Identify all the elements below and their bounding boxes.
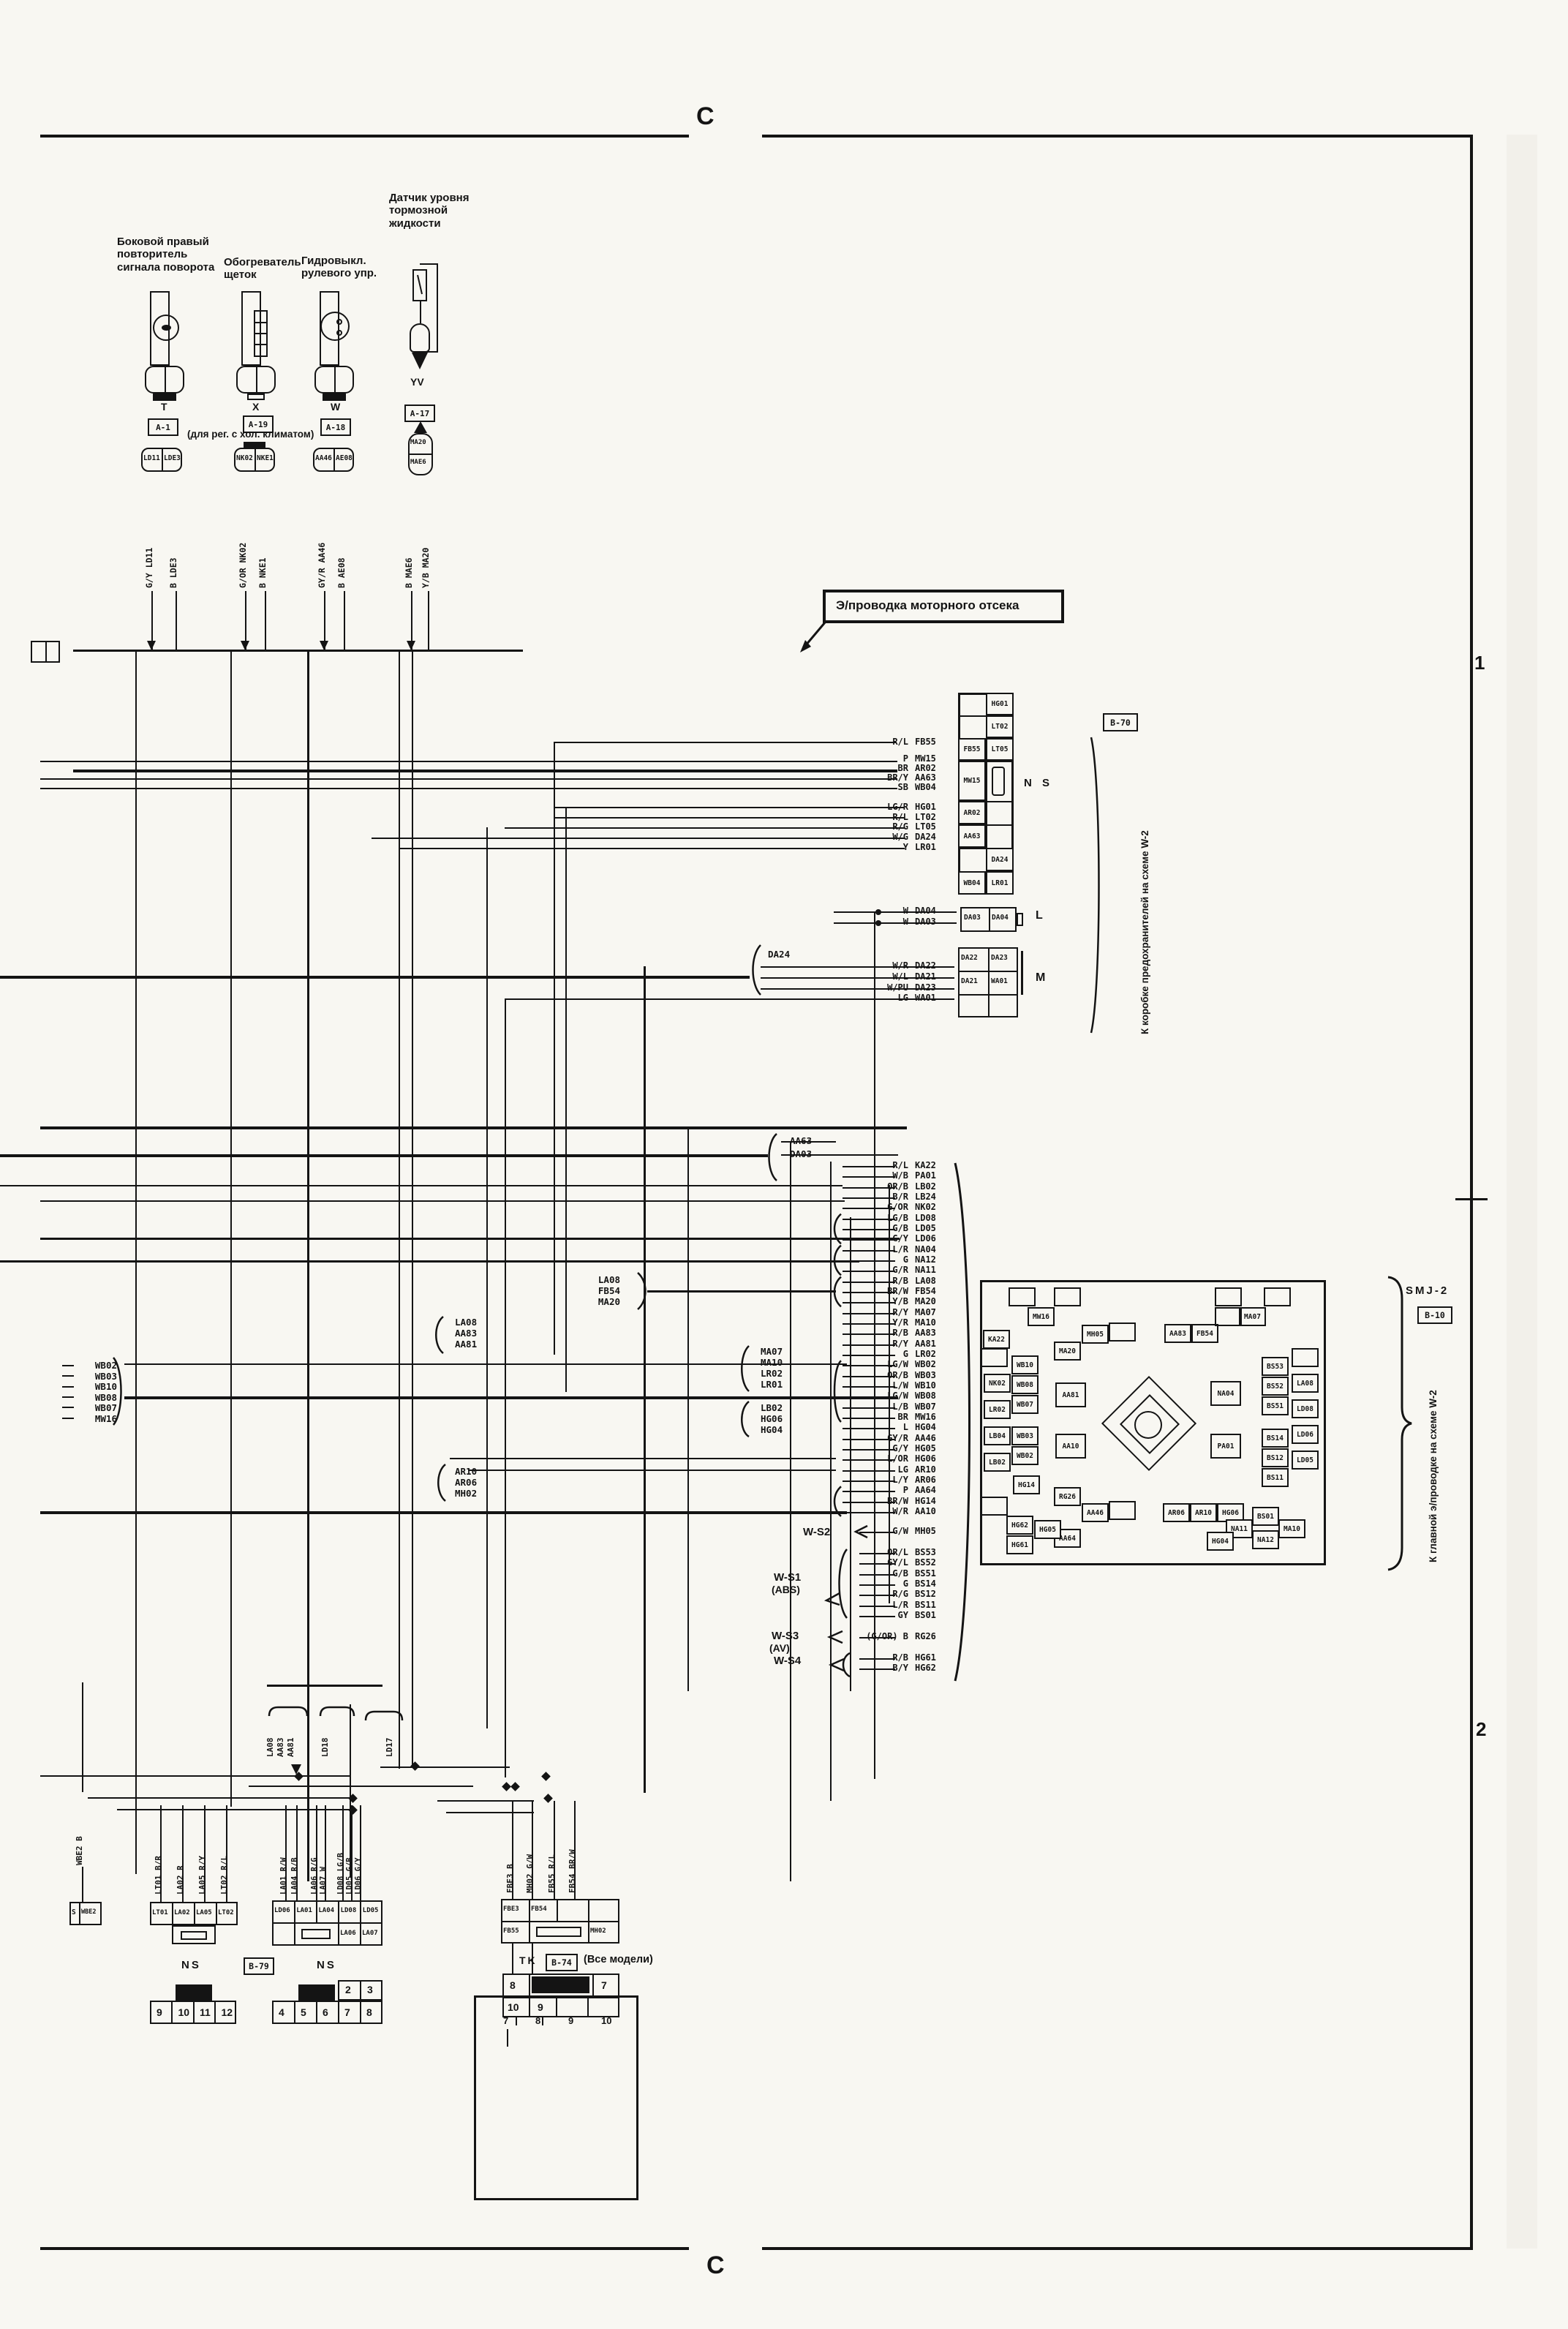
wire-pin: HG06 — [915, 1453, 954, 1464]
smj-empty-cell — [1215, 1307, 1242, 1326]
wire-pin: MA07 — [915, 1307, 954, 1317]
wire-line — [762, 135, 1471, 138]
wire-pin: PA01 — [915, 1170, 954, 1181]
wire-pin: BS14 — [915, 1579, 954, 1589]
bracket-wire-label: DA03 — [790, 1149, 812, 1159]
wire-line — [62, 1407, 74, 1408]
wire-line — [843, 1197, 895, 1199]
wire-pin: BS01 — [915, 1610, 954, 1620]
pin-id: WBE2 — [81, 1909, 96, 1916]
pin-number: 9 — [157, 2006, 162, 2018]
pin-id: LA07 — [362, 1930, 378, 1937]
wire-line — [843, 1502, 895, 1503]
pin-id: FBE3 — [503, 1905, 519, 1913]
wire-line — [40, 135, 689, 138]
wire-label: B/RLB24 — [826, 1192, 954, 1202]
pin-number: 10 — [178, 2006, 190, 2018]
wire-label: L/RNA04 — [826, 1244, 954, 1254]
wire-color: R/L — [826, 812, 915, 822]
slot — [992, 767, 1005, 796]
wire-color: L/OR — [826, 1453, 915, 1464]
wire-color: LG — [826, 993, 915, 1003]
m-cell: DA21 — [961, 978, 978, 986]
wire-label: R/LFB55 — [826, 737, 954, 747]
wire-line — [843, 1187, 895, 1189]
wire-pin: DA04 — [915, 906, 954, 916]
wire-line — [843, 1396, 895, 1398]
wire-line — [647, 1290, 836, 1293]
wire-color: W/PU — [826, 982, 915, 993]
junction-dot — [502, 1782, 511, 1791]
wire-line — [0, 976, 750, 979]
wire-label: R/YMA07 — [826, 1307, 954, 1317]
wire-color: LG/W — [826, 1391, 915, 1401]
wire-label: W/LDA21 — [826, 971, 954, 982]
rotated-wire-label: B LDE3 — [169, 477, 178, 588]
pin-id: LA05 — [196, 1909, 212, 1916]
group-label: AA83 — [276, 1712, 286, 1757]
bracket-wire-label: MA20 — [598, 1297, 620, 1307]
junction-dot — [541, 1772, 551, 1781]
smj-cell: WB10 — [1011, 1355, 1039, 1374]
smj-cell: NA12 — [1252, 1530, 1279, 1549]
smj-cell: BS53 — [1262, 1357, 1289, 1376]
wire-color: SB — [826, 782, 915, 792]
wire-line — [859, 1616, 895, 1617]
wire-color: W/G — [826, 832, 915, 842]
wire-pin: LR01 — [915, 842, 954, 852]
rotated-wire-label: GY/R AA46 — [317, 477, 327, 588]
wire-pin: DA23 — [915, 982, 954, 993]
connector-ref: A-17 — [404, 405, 435, 422]
smj-cell: FB54 — [1191, 1324, 1218, 1343]
wire-line — [245, 591, 246, 651]
pin-number: 5 — [301, 2006, 306, 2018]
smj-empty-cell — [1292, 1348, 1319, 1367]
wire-label: G/RNA11 — [826, 1265, 954, 1275]
wire-label: LHG04 — [826, 1422, 954, 1432]
wire-color: BR — [826, 763, 915, 773]
wire-line — [843, 1512, 895, 1513]
wire-line — [194, 1902, 195, 1925]
wire-pin: BS12 — [915, 1589, 954, 1599]
wire-color: G — [826, 1349, 915, 1359]
smj-cell: LB04 — [984, 1426, 1011, 1445]
smj-cell: AR06 — [1163, 1503, 1190, 1522]
smj-cell: KA22 — [983, 1330, 1010, 1349]
ws-label: W-S4 — [774, 1655, 801, 1667]
wire-color: R/Y — [826, 1307, 915, 1317]
smj-empty-cell — [1109, 1322, 1136, 1342]
wire-color: R/G — [826, 1589, 915, 1599]
wire-line — [843, 1292, 895, 1293]
wire-pin: HG04 — [915, 1422, 954, 1432]
wire-line — [338, 1900, 339, 1922]
bracket-path — [955, 1163, 970, 1681]
wire-line — [40, 788, 897, 789]
wire-pin: LT05 — [915, 821, 954, 832]
wire-line — [958, 994, 1018, 996]
wire-color: B/Y — [826, 1663, 915, 1673]
wire-line — [333, 448, 335, 472]
bracket-wire-label: WB02 — [95, 1361, 117, 1371]
component-label: Датчик уровня тормозной жидкости — [389, 192, 469, 230]
wire-label: GY/LBS52 — [826, 1557, 954, 1568]
ns-cell: LT02 — [986, 715, 1014, 738]
wire-line — [687, 1126, 689, 1691]
wire-line — [249, 1786, 473, 1787]
wire-line — [45, 641, 47, 663]
wire-color: R/G — [826, 821, 915, 832]
pin-id: MAE6 — [410, 459, 426, 466]
wire-line — [501, 1921, 619, 1922]
bracket-wire-label: MA07 — [761, 1347, 783, 1357]
wire-label: R/LKA22 — [826, 1160, 954, 1170]
wire-label: R/BLA08 — [826, 1276, 954, 1286]
wire-color: GY/L — [826, 1557, 915, 1568]
wire-label: G/YHG05 — [826, 1443, 954, 1453]
wire-color: BR/Y — [826, 772, 915, 783]
wire-color: R/L — [826, 1160, 915, 1170]
wire-pin: HG14 — [915, 1496, 954, 1506]
wire-pin: HG62 — [915, 1663, 954, 1673]
wire-label: R/LLT02 — [826, 812, 954, 822]
wire-pin: WB03 — [915, 1370, 954, 1380]
wire-pin: AR06 — [915, 1475, 954, 1485]
pin-id: LD08 — [341, 1907, 357, 1914]
wire-line — [380, 1766, 510, 1768]
wire-label: W/PUDA23 — [826, 982, 954, 993]
wire-color: Y/R — [826, 1317, 915, 1328]
wire-line — [505, 998, 506, 1777]
steer-pin-number: 9 — [568, 2016, 573, 2027]
wire-line — [859, 1637, 895, 1638]
wire-line — [40, 1200, 845, 1202]
wire-line — [843, 1407, 895, 1409]
wire-label: PAA64 — [826, 1485, 954, 1495]
l-cell: DA03 — [964, 914, 981, 922]
bracket-path — [366, 1712, 402, 1720]
arrow-head-icon — [800, 640, 811, 652]
group-label: LD18 — [321, 1712, 331, 1757]
wire-line — [859, 1563, 895, 1565]
smj-empty-cell — [981, 1497, 1008, 1516]
wire-label: L/YAR06 — [826, 1475, 954, 1485]
ns-cell: LT05 — [986, 738, 1014, 761]
smj-cell: RG26 — [1054, 1487, 1081, 1506]
wire-line — [230, 651, 232, 1807]
wire-line — [859, 1595, 895, 1596]
bracket-wire-label: WB03 — [95, 1372, 117, 1382]
wire-color: G/Y — [826, 1233, 915, 1243]
rotated-wire-label: B NKE1 — [258, 477, 268, 588]
bracket-path — [769, 1134, 777, 1181]
wire-pin: MA10 — [915, 1317, 954, 1328]
wire-color: G — [826, 1254, 915, 1265]
wire-color: OR/L — [826, 1547, 915, 1557]
wire-line — [588, 1899, 589, 1944]
component-label: Гидровыкл. рулевого упр. — [301, 255, 377, 280]
wire-line — [859, 1606, 895, 1607]
bracket-path — [436, 1317, 443, 1353]
smj-cell: WB03 — [1011, 1426, 1039, 1445]
smj-cell: HG14 — [1013, 1475, 1040, 1494]
wire-line — [254, 322, 268, 323]
bracket-wire-label: MA10 — [761, 1358, 783, 1368]
pin-number: 6 — [323, 2006, 328, 2018]
wire-line — [843, 1250, 895, 1252]
wire-line — [272, 1922, 382, 1924]
bracket-path — [438, 1464, 445, 1501]
wire-line — [843, 1491, 895, 1492]
wire-line — [592, 1974, 594, 1997]
wire-pin: NA04 — [915, 1244, 954, 1254]
wire-pin: DA03 — [915, 917, 954, 927]
wire-color: LG — [826, 1464, 915, 1475]
pin-id: LDE3 — [164, 455, 181, 463]
wire-line — [843, 1323, 895, 1325]
section-marker-top: C — [696, 102, 715, 131]
wire-line — [73, 770, 897, 772]
smj-cell: HG04 — [1207, 1532, 1234, 1551]
wire-pin: AA46 — [915, 1433, 954, 1443]
wire-line — [40, 761, 897, 762]
pin-number: 8 — [366, 2006, 372, 2018]
wire-color: W/L — [826, 971, 915, 982]
wire-label: LG/WWB08 — [826, 1391, 954, 1401]
bracket-wire-label: LR01 — [761, 1380, 783, 1390]
steer-pin-number: 7 — [503, 2016, 508, 2027]
rotated-wire-label: G/OR NK02 — [238, 477, 248, 588]
wire-line — [989, 907, 990, 932]
rotated-wire-label: FBE3 B — [506, 1804, 516, 1893]
wire-line — [1021, 951, 1023, 995]
wire-line — [360, 2001, 361, 2024]
wire-label: R/GLT05 — [826, 821, 954, 832]
wire-line — [399, 651, 400, 1769]
wire-line — [843, 1333, 895, 1335]
wire-pin: BS52 — [915, 1557, 954, 1568]
wire-line — [307, 651, 309, 1881]
wire-pin: NK02 — [915, 1202, 954, 1212]
wire-line — [446, 1812, 534, 1813]
pin-id: AA46 — [315, 455, 332, 463]
wire-pin: DA22 — [915, 960, 954, 971]
ws-label: W-S1 — [774, 1571, 801, 1584]
component-label: Боковой правый повторитель сигнала повор… — [117, 236, 214, 274]
row-marker-2: 2 — [1476, 1719, 1486, 1741]
ws-label: W-S3 — [772, 1630, 799, 1642]
rotated-wire-label: LD06 G/Y — [354, 1808, 363, 1895]
outline-box — [301, 1929, 331, 1939]
component-note: (для рег. с хол. климатом) — [187, 429, 314, 440]
ns-cell: AR02 — [958, 801, 986, 824]
wire-line — [124, 1363, 847, 1365]
wire-pin: AA63 — [915, 772, 954, 783]
ws-sub: (ABS) — [772, 1584, 800, 1595]
wire-line — [420, 263, 437, 265]
wire-label: YLR01 — [826, 842, 954, 852]
smj-cell: AA46 — [1082, 1503, 1109, 1522]
wire-color: OR/B — [826, 1181, 915, 1192]
wire-line — [859, 1574, 895, 1576]
steering-wheel-box — [474, 1995, 638, 2200]
wire-line — [486, 827, 488, 1728]
wire-line — [843, 1176, 895, 1178]
rotated-wire-label: Y/B MA20 — [421, 477, 431, 588]
wire-pin: BS11 — [915, 1600, 954, 1610]
rotated-wire-label: LA01 R/W — [279, 1808, 288, 1895]
bracket-wire-label: DA24 — [768, 949, 790, 960]
junction-dot — [510, 1782, 520, 1791]
wire-line — [162, 448, 163, 472]
pin-number: 8 — [510, 1979, 516, 1991]
wire-line — [0, 1260, 859, 1263]
wire-color: B/R — [826, 1192, 915, 1202]
wire-line — [437, 263, 438, 353]
wire-label: BRMW16 — [826, 1412, 954, 1422]
wire-label: OR/BWB03 — [826, 1370, 954, 1380]
wire-line — [124, 1396, 898, 1399]
wire-color: LG/R — [826, 802, 915, 812]
smj-keyway — [1134, 1411, 1162, 1439]
smj-cell: BS11 — [1262, 1468, 1289, 1487]
wire-label: R/BAA83 — [826, 1328, 954, 1338]
tk-label: TK — [519, 1954, 538, 1966]
wire-label: W/RDA22 — [826, 960, 954, 971]
pin-id: LA04 — [318, 1907, 334, 1914]
pin-id: LD11 — [143, 455, 160, 463]
rotated-wire-label: B MAE6 — [404, 477, 414, 588]
connector-ref: A-18 — [320, 418, 351, 436]
wire-line — [988, 947, 990, 1017]
wire-color: G/Y — [826, 1443, 915, 1453]
wire-line — [216, 1902, 217, 1925]
steer-pin-number: 10 — [601, 2016, 611, 2027]
wire-line — [193, 2001, 195, 2024]
smj-empty-cell — [1215, 1287, 1242, 1306]
wire-label: LGAR10 — [826, 1464, 954, 1475]
smj-empty-cell — [1109, 1501, 1136, 1520]
smj-title: SMJ-2 — [1406, 1284, 1449, 1297]
wire-line — [958, 947, 1018, 949]
wire-line — [859, 1658, 895, 1660]
wire-line — [40, 1511, 847, 1514]
smj-cell: BS01 — [1252, 1507, 1279, 1526]
wire-line — [428, 591, 429, 651]
wire-line — [843, 1386, 895, 1388]
wire-line — [294, 1922, 295, 1946]
wire-label: PMW15 — [826, 753, 954, 764]
wire-pin: HG01 — [915, 802, 954, 812]
ns-title: N S — [1024, 777, 1053, 789]
m-cell: DA23 — [991, 955, 1008, 963]
wire-line — [532, 1944, 533, 1974]
pin-id: NK02 — [236, 455, 253, 463]
bracket-wire-label: WB08 — [95, 1393, 117, 1403]
smj-cell: BS14 — [1262, 1429, 1289, 1448]
wire-color: R/B — [826, 1276, 915, 1286]
wire-line — [165, 366, 166, 394]
wire-color: L/R — [826, 1600, 915, 1610]
wire-pin: FB55 — [915, 737, 954, 747]
wire-label: BR/WFB54 — [826, 1286, 954, 1296]
ns-cell: WB04 — [958, 871, 986, 895]
bracket-wire-label: WB07 — [95, 1403, 117, 1413]
wire-label: G/ORNK02 — [826, 1202, 954, 1212]
wire-label: R/BHG61 — [826, 1652, 954, 1663]
wire-line — [88, 1797, 351, 1799]
rotated-wire-label: WBE2 B — [75, 1794, 85, 1865]
wire-pin: DA24 — [915, 832, 954, 842]
contact-circle — [320, 312, 350, 341]
wire-pin: LR02 — [915, 1349, 954, 1359]
pin-id: LT02 — [218, 1909, 234, 1916]
wire-label: OR/BLB02 — [826, 1181, 954, 1192]
wire-line — [62, 1386, 74, 1388]
wire-line — [360, 1922, 361, 1946]
arrow-head-icon — [412, 353, 428, 369]
wire-line — [73, 650, 523, 652]
wire-label: LG/BLD08 — [826, 1213, 954, 1223]
pin-id: LA02 — [174, 1909, 190, 1916]
ns-label: NS — [317, 1959, 336, 1971]
wire-line — [843, 1355, 895, 1356]
wire-label: WDA04 — [826, 906, 954, 916]
smj-cell: AR10 — [1190, 1503, 1217, 1522]
bulb-filament — [162, 325, 171, 331]
wire-line — [1455, 1198, 1488, 1200]
wire-line — [843, 1470, 895, 1472]
pin-id: LD06 — [274, 1907, 290, 1914]
wire-color: Y — [826, 842, 915, 852]
wire-line — [412, 651, 413, 1766]
contact-circle — [336, 319, 342, 325]
wire-label: L/BWB07 — [826, 1401, 954, 1412]
wire-line — [0, 1154, 768, 1157]
wire-line — [360, 1980, 361, 2001]
wire-pin: RG26 — [915, 1631, 954, 1641]
wire-line — [324, 591, 325, 651]
bracket-wire-label: AA83 — [455, 1328, 477, 1339]
wire-label: L/ORHG06 — [826, 1453, 954, 1464]
wire-pin: KA22 — [915, 1160, 954, 1170]
pin-id: FB54 — [531, 1905, 547, 1913]
bracket-wire-label: MH02 — [455, 1489, 477, 1499]
wire-line — [171, 2001, 173, 2024]
bracket-path — [805, 622, 825, 646]
wire-pin: WB04 — [915, 782, 954, 792]
rotated-wire-label: FB55 R/L — [548, 1804, 557, 1893]
m-cell: WA01 — [991, 978, 1008, 986]
wire-pin: WB10 — [915, 1380, 954, 1391]
wire-pin: NA11 — [915, 1265, 954, 1275]
wire-pin: AA83 — [915, 1328, 954, 1338]
pin-number: 11 — [200, 2006, 211, 2018]
wire-label: GNA12 — [826, 1254, 954, 1265]
connector-ref: B-74 — [546, 1954, 578, 1971]
rotated-wire-label: LD08 LG/B — [336, 1808, 345, 1895]
rotated-wire-label: LA07 W — [319, 1808, 328, 1895]
wire-pin: WB08 — [915, 1391, 954, 1401]
wire-line — [843, 1229, 895, 1230]
wire-line — [254, 344, 268, 345]
bracket-path — [1091, 737, 1099, 1033]
bracket-path — [742, 1346, 749, 1391]
pin-number: 2 — [345, 1984, 351, 1995]
pin-id: LA06 — [340, 1930, 356, 1937]
wire-line — [316, 1900, 317, 1922]
